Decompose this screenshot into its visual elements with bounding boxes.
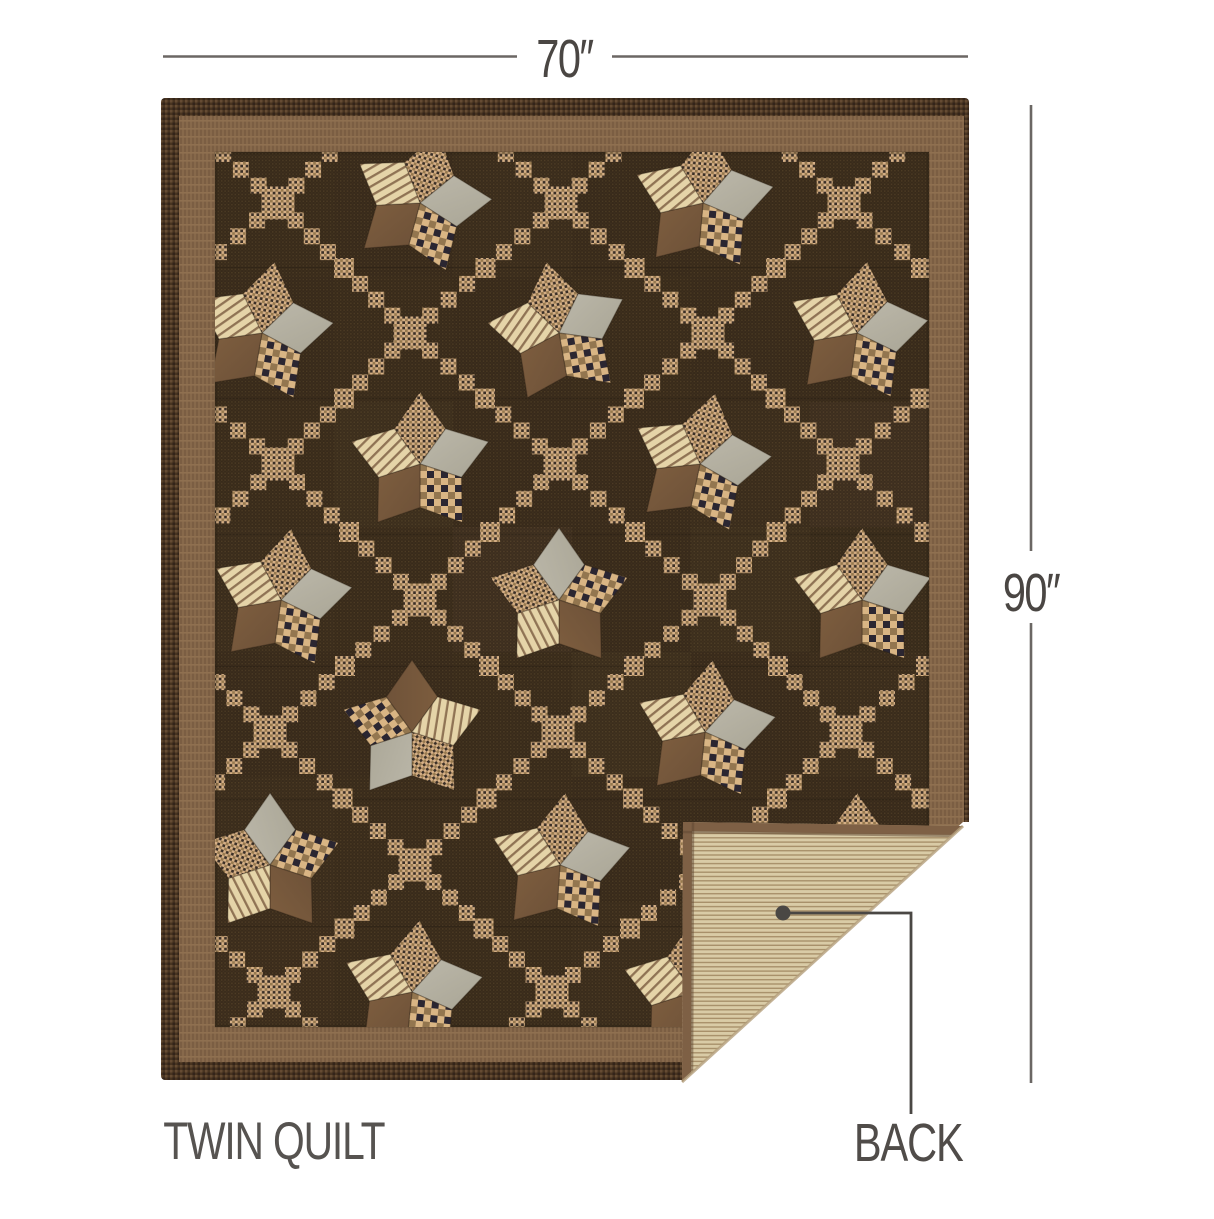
- svg-text:TWIN QUILT: TWIN QUILT: [163, 1112, 384, 1171]
- svg-text:BACK: BACK: [854, 1113, 964, 1174]
- svg-text:70″: 70″: [536, 29, 594, 90]
- svg-text:90″: 90″: [1003, 563, 1061, 624]
